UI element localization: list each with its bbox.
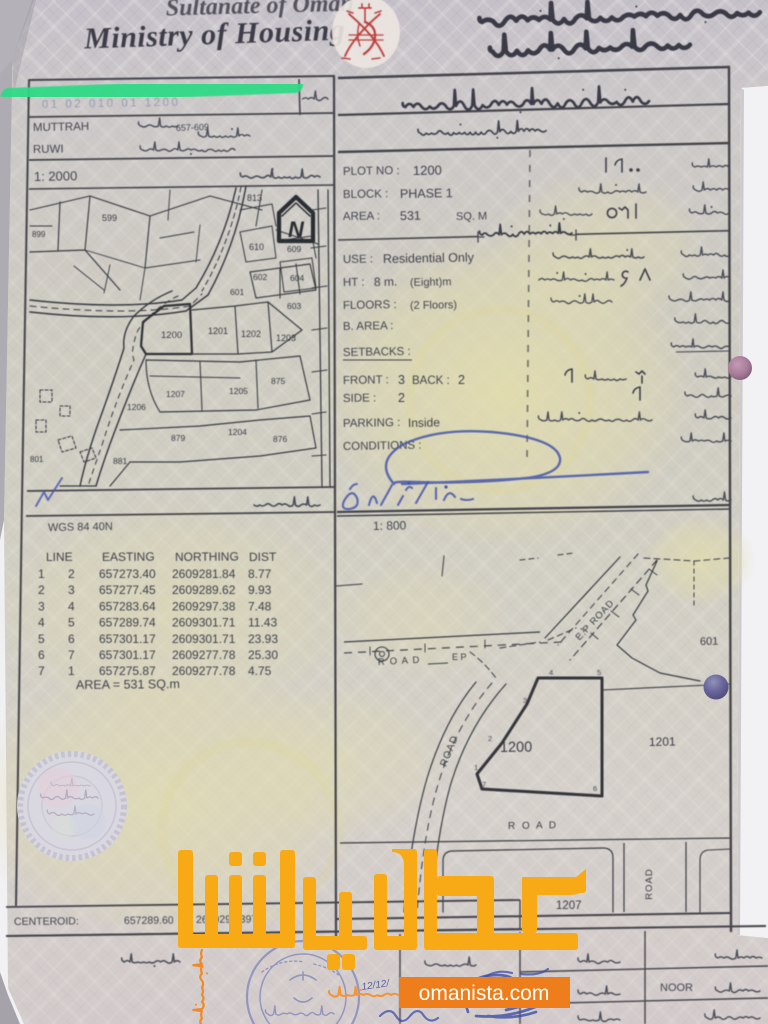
svg-text:879: 879: [171, 433, 185, 443]
svg-text:1201: 1201: [649, 735, 676, 749]
svg-text:657301.17: 657301.17: [99, 632, 156, 646]
svg-text:CENTEROID:: CENTEROID:: [14, 915, 79, 928]
svg-text:599: 599: [102, 213, 117, 223]
svg-text:4: 4: [38, 616, 45, 630]
svg-text:EASTING: EASTING: [102, 550, 155, 564]
svg-text:RUWI: RUWI: [33, 143, 64, 156]
svg-text:11.43: 11.43: [248, 616, 277, 630]
svg-text:1: 1: [474, 763, 478, 772]
svg-text:R O A D: R O A D: [378, 655, 421, 668]
svg-text:1: 2000: 1: 2000: [34, 168, 78, 184]
svg-text:2: 2: [488, 734, 492, 743]
svg-text:1207: 1207: [556, 900, 582, 912]
svg-text:NORTHING: NORTHING: [175, 549, 239, 564]
svg-text:5: 5: [597, 668, 601, 677]
svg-text:5: 5: [68, 616, 75, 630]
svg-text:4.75: 4.75: [248, 664, 272, 678]
svg-text:1: 1: [38, 567, 45, 581]
svg-text:2609277.78: 2609277.78: [172, 664, 236, 678]
svg-text:PLOT NO :: PLOT NO :: [343, 165, 400, 178]
svg-text:2: 2: [38, 583, 45, 597]
svg-text:SQ. M: SQ. M: [456, 210, 487, 223]
svg-text:531: 531: [400, 209, 421, 223]
svg-text:1205: 1205: [229, 386, 248, 396]
svg-text:2: 2: [68, 567, 75, 581]
svg-text:1201: 1201: [208, 326, 228, 336]
svg-text:(2 Floors): (2 Floors): [410, 299, 457, 312]
svg-text:BLOCK :: BLOCK :: [343, 188, 389, 201]
svg-text:657277.45: 657277.45: [99, 583, 156, 597]
svg-text:ROAD: ROAD: [644, 868, 655, 899]
svg-text:B. AREA :: B. AREA :: [343, 320, 394, 333]
svg-text:1202: 1202: [241, 329, 261, 339]
svg-text:2: 2: [458, 373, 465, 387]
svg-text:1200: 1200: [161, 330, 182, 341]
svg-text:AREA :: AREA :: [343, 210, 380, 223]
svg-text:2609277.78: 2609277.78: [172, 648, 236, 662]
svg-text:881: 881: [113, 456, 127, 466]
svg-text:omanista.com: omanista.com: [419, 982, 550, 1005]
svg-text:HT :: HT :: [343, 277, 365, 289]
svg-text:1203: 1203: [276, 333, 296, 343]
svg-text:2609281.84: 2609281.84: [172, 567, 236, 581]
svg-text:7: 7: [38, 664, 45, 678]
svg-text:657275.87: 657275.87: [99, 664, 156, 678]
svg-text:2609289.62: 2609289.62: [172, 583, 236, 597]
svg-text:Inside: Inside: [408, 415, 441, 430]
svg-text:899: 899: [32, 230, 46, 239]
svg-text:6: 6: [68, 632, 75, 646]
svg-text:USE :: USE :: [343, 253, 373, 266]
svg-text:6: 6: [38, 648, 45, 662]
svg-text:657273.40: 657273.40: [99, 567, 156, 581]
svg-text:1200: 1200: [500, 739, 533, 756]
svg-text:9.93: 9.93: [248, 583, 272, 597]
svg-text:2609301.71: 2609301.71: [172, 616, 236, 630]
svg-text:SETBACKS :: SETBACKS :: [343, 346, 411, 359]
svg-text:603: 603: [287, 301, 301, 311]
svg-text:(Eight)m: (Eight)m: [410, 276, 452, 289]
svg-text:3: 3: [68, 583, 75, 597]
svg-text:25.30: 25.30: [248, 648, 278, 662]
svg-text:3: 3: [523, 696, 527, 705]
svg-text:WGS 84 40N: WGS 84 40N: [48, 521, 113, 534]
svg-text:Residential Only: Residential Only: [383, 250, 475, 266]
svg-text:2: 2: [398, 391, 405, 405]
svg-text:1200: 1200: [413, 162, 442, 178]
svg-text:MUTTRAH: MUTTRAH: [33, 121, 89, 134]
svg-text:AREA = 531 SQ.m: AREA = 531 SQ.m: [76, 677, 180, 692]
svg-text:1204: 1204: [228, 427, 247, 437]
svg-text:E P: E P: [452, 652, 467, 662]
svg-text:657289.60: 657289.60: [124, 915, 174, 927]
svg-text:602: 602: [253, 272, 267, 282]
svg-text:4: 4: [68, 599, 75, 613]
svg-text:657-609: 657-609: [176, 122, 209, 133]
svg-text:2609301.71: 2609301.71: [172, 632, 236, 646]
svg-text:801: 801: [30, 455, 44, 464]
svg-text:6: 6: [593, 784, 597, 793]
svg-text:1: 800: 1: 800: [373, 518, 407, 533]
svg-text:813: 813: [247, 193, 262, 203]
svg-text:FRONT :: FRONT :: [343, 374, 389, 387]
svg-text:8.77: 8.77: [248, 567, 272, 581]
svg-text:3: 3: [38, 599, 45, 613]
svg-text:DIST: DIST: [249, 550, 277, 564]
svg-text:5: 5: [38, 632, 45, 646]
svg-text:4: 4: [549, 668, 553, 677]
svg-text:1206: 1206: [127, 402, 146, 412]
svg-text:875: 875: [271, 376, 285, 386]
svg-text:FLOORS :: FLOORS :: [343, 299, 397, 312]
svg-text:1207: 1207: [166, 389, 185, 399]
svg-text:SIDE :: SIDE :: [343, 392, 376, 405]
svg-text:N: N: [288, 217, 305, 242]
svg-text:PHASE 1: PHASE 1: [400, 186, 453, 201]
svg-text:7: 7: [68, 648, 75, 662]
svg-text:609: 609: [287, 244, 301, 254]
svg-text:1: 1: [68, 664, 75, 678]
svg-text:LINE: LINE: [46, 550, 73, 564]
svg-text:876: 876: [273, 434, 287, 444]
svg-text:601: 601: [700, 636, 719, 648]
svg-text:3: 3: [398, 373, 405, 387]
svg-text:657283.64: 657283.64: [99, 599, 156, 613]
svg-text:657301.17: 657301.17: [99, 648, 156, 662]
svg-text:R O A D: R O A D: [508, 820, 558, 832]
svg-text:2609297.38: 2609297.38: [172, 599, 236, 613]
svg-text:23.93: 23.93: [248, 632, 278, 646]
svg-text:NOOR: NOOR: [660, 982, 693, 994]
svg-text:BACK :: BACK :: [412, 375, 450, 387]
svg-text:PARKING :: PARKING :: [343, 417, 401, 430]
svg-text:8 m.: 8 m.: [374, 275, 398, 289]
svg-text:7: 7: [482, 780, 486, 789]
svg-text:610: 610: [249, 242, 264, 252]
svg-text:7.48: 7.48: [248, 599, 272, 613]
svg-text:657289.74: 657289.74: [99, 616, 156, 630]
svg-text:601: 601: [230, 287, 244, 297]
